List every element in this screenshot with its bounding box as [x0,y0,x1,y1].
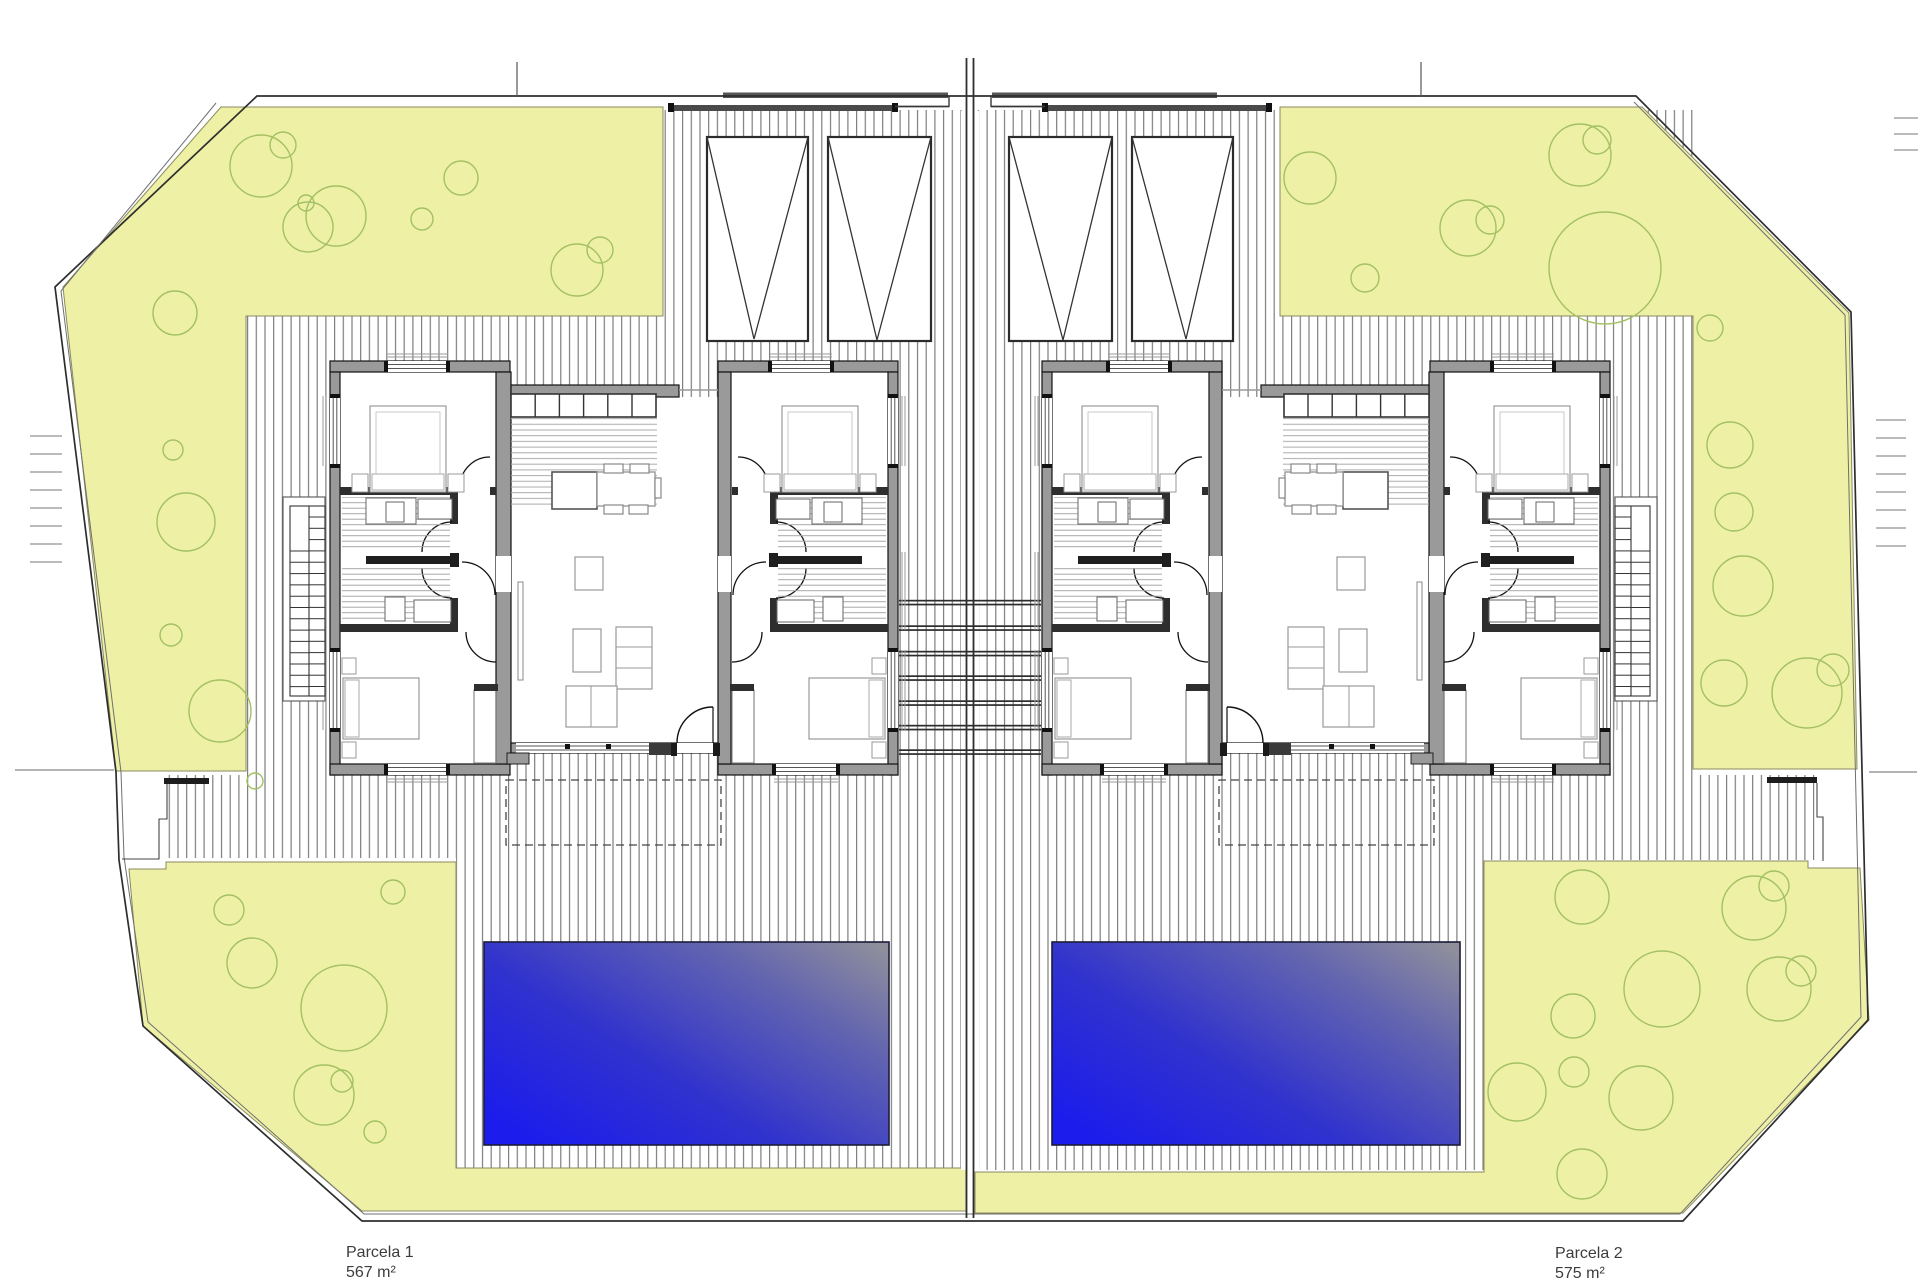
svg-text:575 m²: 575 m² [1555,1265,1605,1280]
svg-text:Parcela 2: Parcela 2 [1555,1245,1623,1262]
svg-text:Parcela 1: Parcela 1 [346,1244,414,1261]
svg-text:567 m²: 567 m² [346,1264,396,1280]
